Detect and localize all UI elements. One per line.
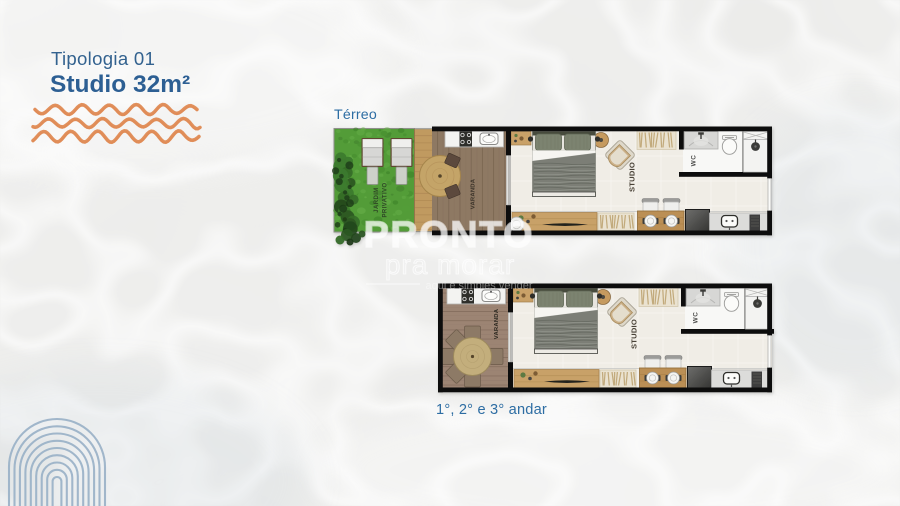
svg-text:pra morar: pra morar (385, 249, 515, 280)
svg-text:VARANDA: VARANDA (494, 308, 500, 339)
svg-text:STUDIO: STUDIO (628, 162, 637, 192)
svg-text:1°, 2° e 3° andar: 1°, 2° e 3° andar (436, 402, 547, 418)
svg-text:Tipologia 01: Tipologia 01 (51, 48, 155, 69)
svg-text:VARANDA: VARANDA (471, 178, 477, 209)
svg-text:Térreo: Térreo (334, 107, 377, 123)
svg-text:aqui é simples vender: aqui é simples vender (425, 280, 532, 292)
svg-text:JARDIM: JARDIM (374, 187, 380, 212)
svg-text:Studio 32m²: Studio 32m² (50, 71, 190, 98)
svg-text:WC: WC (691, 155, 698, 167)
